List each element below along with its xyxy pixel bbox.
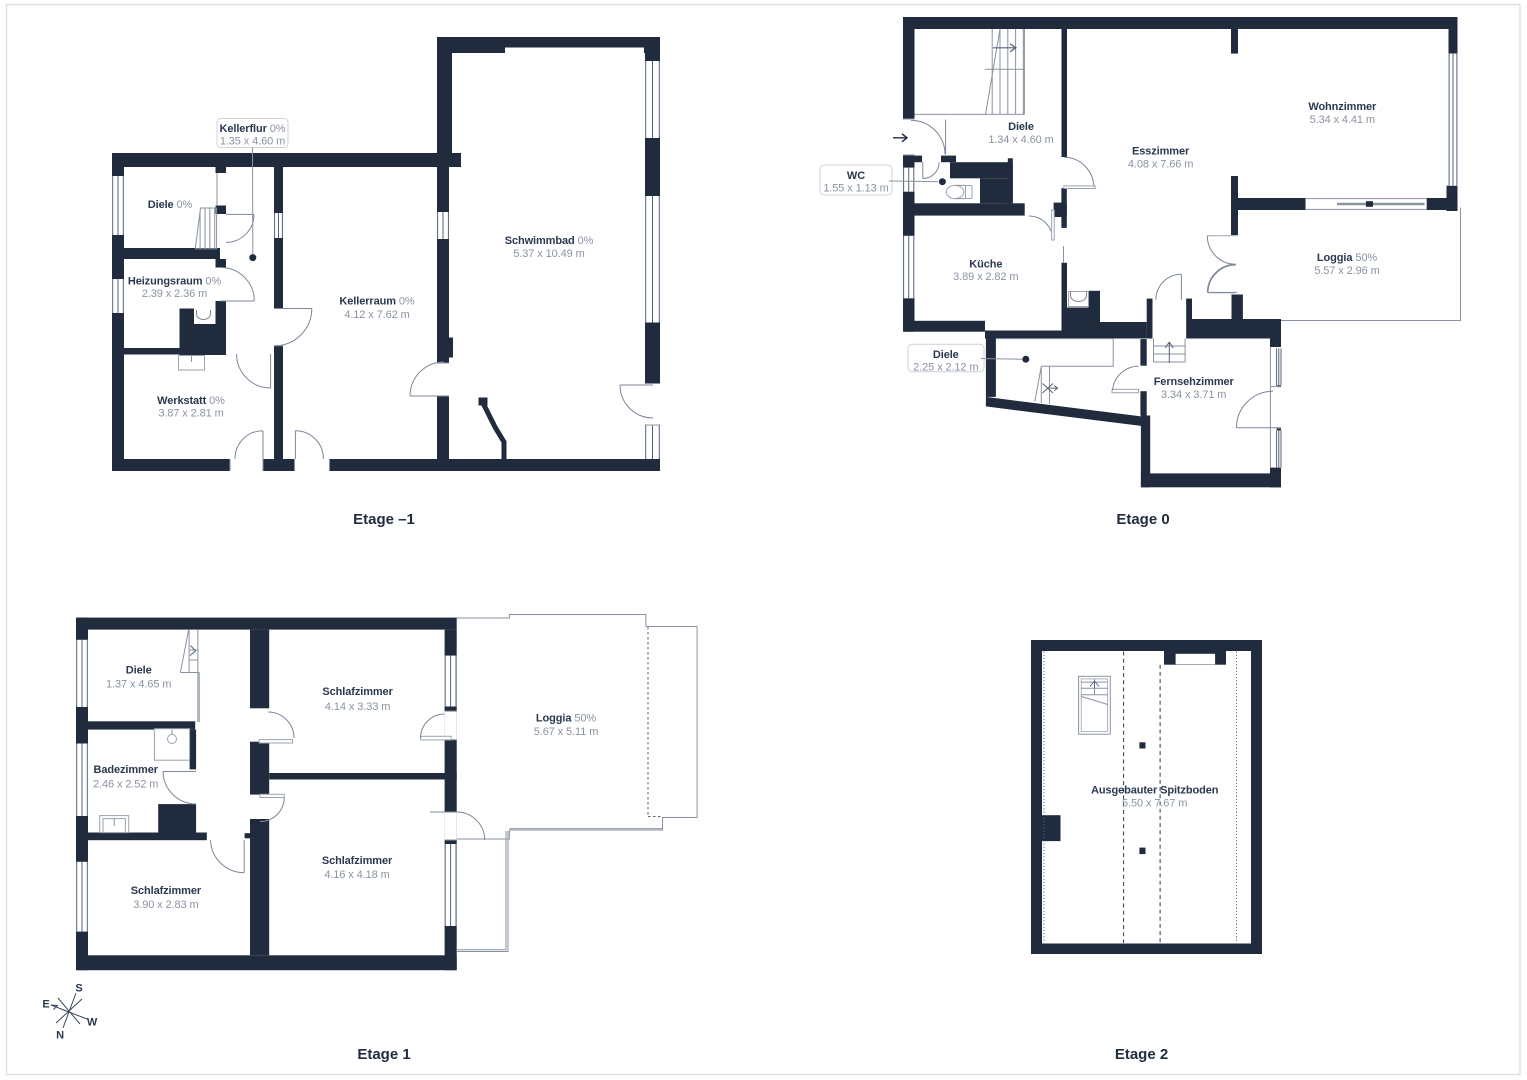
svg-text:1.37 x 4.65 m: 1.37 x 4.65 m: [106, 679, 171, 691]
svg-text:4.12 x 7.62 m: 4.12 x 7.62 m: [344, 309, 409, 321]
svg-text:5.34 x 4.41 m: 5.34 x 4.41 m: [1310, 114, 1375, 126]
svg-text:Schlafzimmer: Schlafzimmer: [322, 686, 393, 698]
svg-text:Etage 2: Etage 2: [1115, 1046, 1168, 1063]
svg-text:2.39 x 2.36 m: 2.39 x 2.36 m: [142, 288, 207, 300]
svg-text:Wohnzimmer: Wohnzimmer: [1308, 101, 1377, 113]
svg-text:1.34 x 4.60 m: 1.34 x 4.60 m: [988, 134, 1053, 146]
svg-text:Heizungsraum 0%: Heizungsraum 0%: [128, 276, 222, 288]
svg-text:5.50 x 7.67 m: 5.50 x 7.67 m: [1122, 798, 1187, 810]
svg-text:Badezimmer: Badezimmer: [93, 764, 158, 776]
svg-text:Diele: Diele: [1008, 121, 1034, 133]
svg-text:Kellerraum 0%: Kellerraum 0%: [339, 296, 414, 308]
svg-text:Werkstatt 0%: Werkstatt 0%: [157, 395, 225, 407]
svg-text:5.67 x 5.11 m: 5.67 x 5.11 m: [534, 726, 599, 738]
svg-text:1.35 x 4.60 m: 1.35 x 4.60 m: [220, 136, 285, 148]
svg-text:3.90 x 2.83 m: 3.90 x 2.83 m: [133, 899, 198, 911]
svg-text:W: W: [87, 1017, 98, 1029]
svg-text:Ausgebauter Spitzboden: Ausgebauter Spitzboden: [1091, 785, 1219, 797]
svg-text:4.14 x 3.33 m: 4.14 x 3.33 m: [325, 701, 390, 713]
svg-text:Diele 0%: Diele 0%: [148, 199, 193, 211]
svg-text:5.57 x 2.96 m: 5.57 x 2.96 m: [1314, 265, 1379, 277]
svg-text:Fernsehzimmer: Fernsehzimmer: [1154, 376, 1235, 388]
svg-text:S: S: [75, 983, 82, 995]
svg-text:2.25 x 2.12 m: 2.25 x 2.12 m: [913, 362, 978, 374]
svg-text:Etage 1: Etage 1: [357, 1046, 410, 1063]
svg-text:WC: WC: [847, 170, 865, 182]
svg-text:N: N: [56, 1030, 64, 1042]
svg-text:4.08 x 7.66 m: 4.08 x 7.66 m: [1128, 159, 1193, 171]
svg-text:Küche: Küche: [969, 258, 1002, 270]
svg-text:Schlafzimmer: Schlafzimmer: [322, 855, 393, 867]
svg-text:Etage –1: Etage –1: [353, 511, 415, 528]
svg-text:Schlafzimmer: Schlafzimmer: [131, 885, 202, 897]
svg-text:Diele: Diele: [933, 349, 959, 361]
svg-text:Esszimmer: Esszimmer: [1132, 146, 1190, 158]
svg-text:E: E: [42, 999, 49, 1011]
svg-text:4.16 x 4.18 m: 4.16 x 4.18 m: [324, 869, 389, 881]
svg-text:3.89 x 2.82 m: 3.89 x 2.82 m: [953, 271, 1018, 283]
svg-text:2.46 x 2.52 m: 2.46 x 2.52 m: [93, 779, 158, 791]
svg-text:3.34 x 3.71 m: 3.34 x 3.71 m: [1161, 389, 1226, 401]
svg-text:1.55 x 1.13 m: 1.55 x 1.13 m: [823, 183, 888, 195]
svg-text:3.87 x 2.81 m: 3.87 x 2.81 m: [158, 408, 223, 420]
svg-text:Kellerflur 0%: Kellerflur 0%: [220, 123, 286, 135]
svg-text:Etage 0: Etage 0: [1116, 511, 1169, 528]
svg-text:Diele: Diele: [126, 665, 152, 677]
svg-text:Loggia 50%: Loggia 50%: [536, 713, 596, 725]
svg-text:Loggia 50%: Loggia 50%: [1317, 252, 1377, 264]
svg-text:5.37 x 10.49 m: 5.37 x 10.49 m: [513, 248, 584, 260]
svg-text:Schwimmbad 0%: Schwimmbad 0%: [505, 235, 594, 247]
